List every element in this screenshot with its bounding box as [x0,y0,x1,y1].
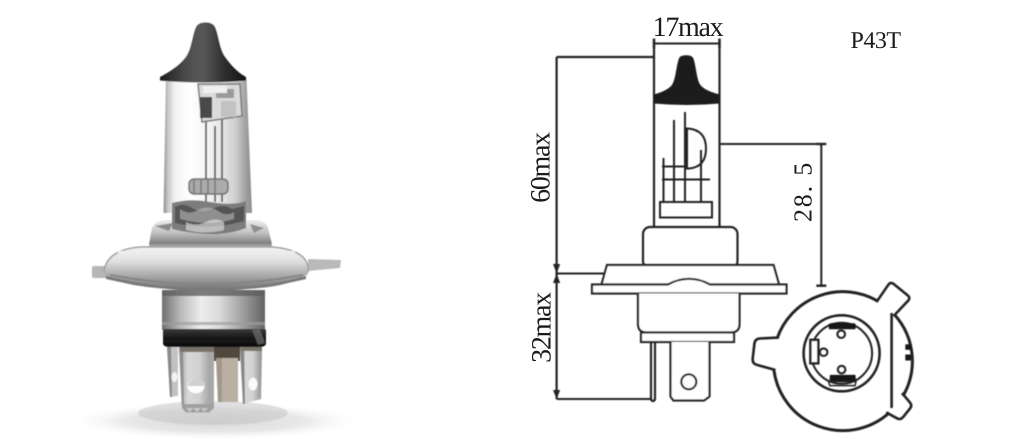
svg-text:P43T: P43T [850,28,901,54]
svg-text:28. 5: 28. 5 [789,161,818,222]
svg-text:32max: 32max [527,292,558,363]
svg-text:17max: 17max [653,12,724,43]
svg-text:60max: 60max [526,132,557,203]
